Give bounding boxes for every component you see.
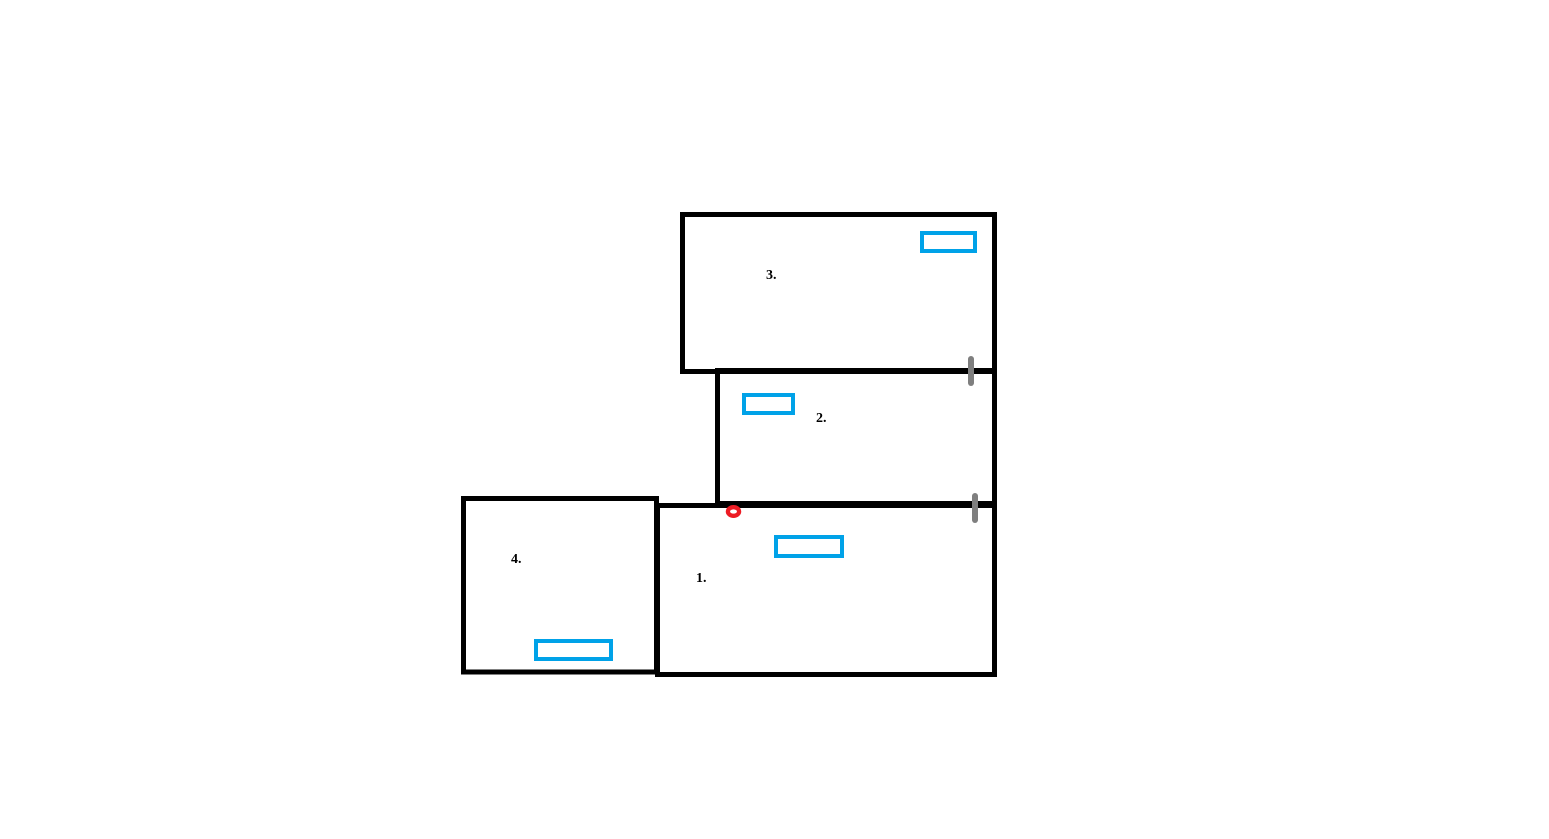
svg-text:1.: 1. — [696, 571, 707, 586]
svg-text:2.: 2. — [816, 411, 827, 426]
svg-text:3.: 3. — [766, 268, 777, 283]
svg-text:4.: 4. — [511, 552, 522, 567]
